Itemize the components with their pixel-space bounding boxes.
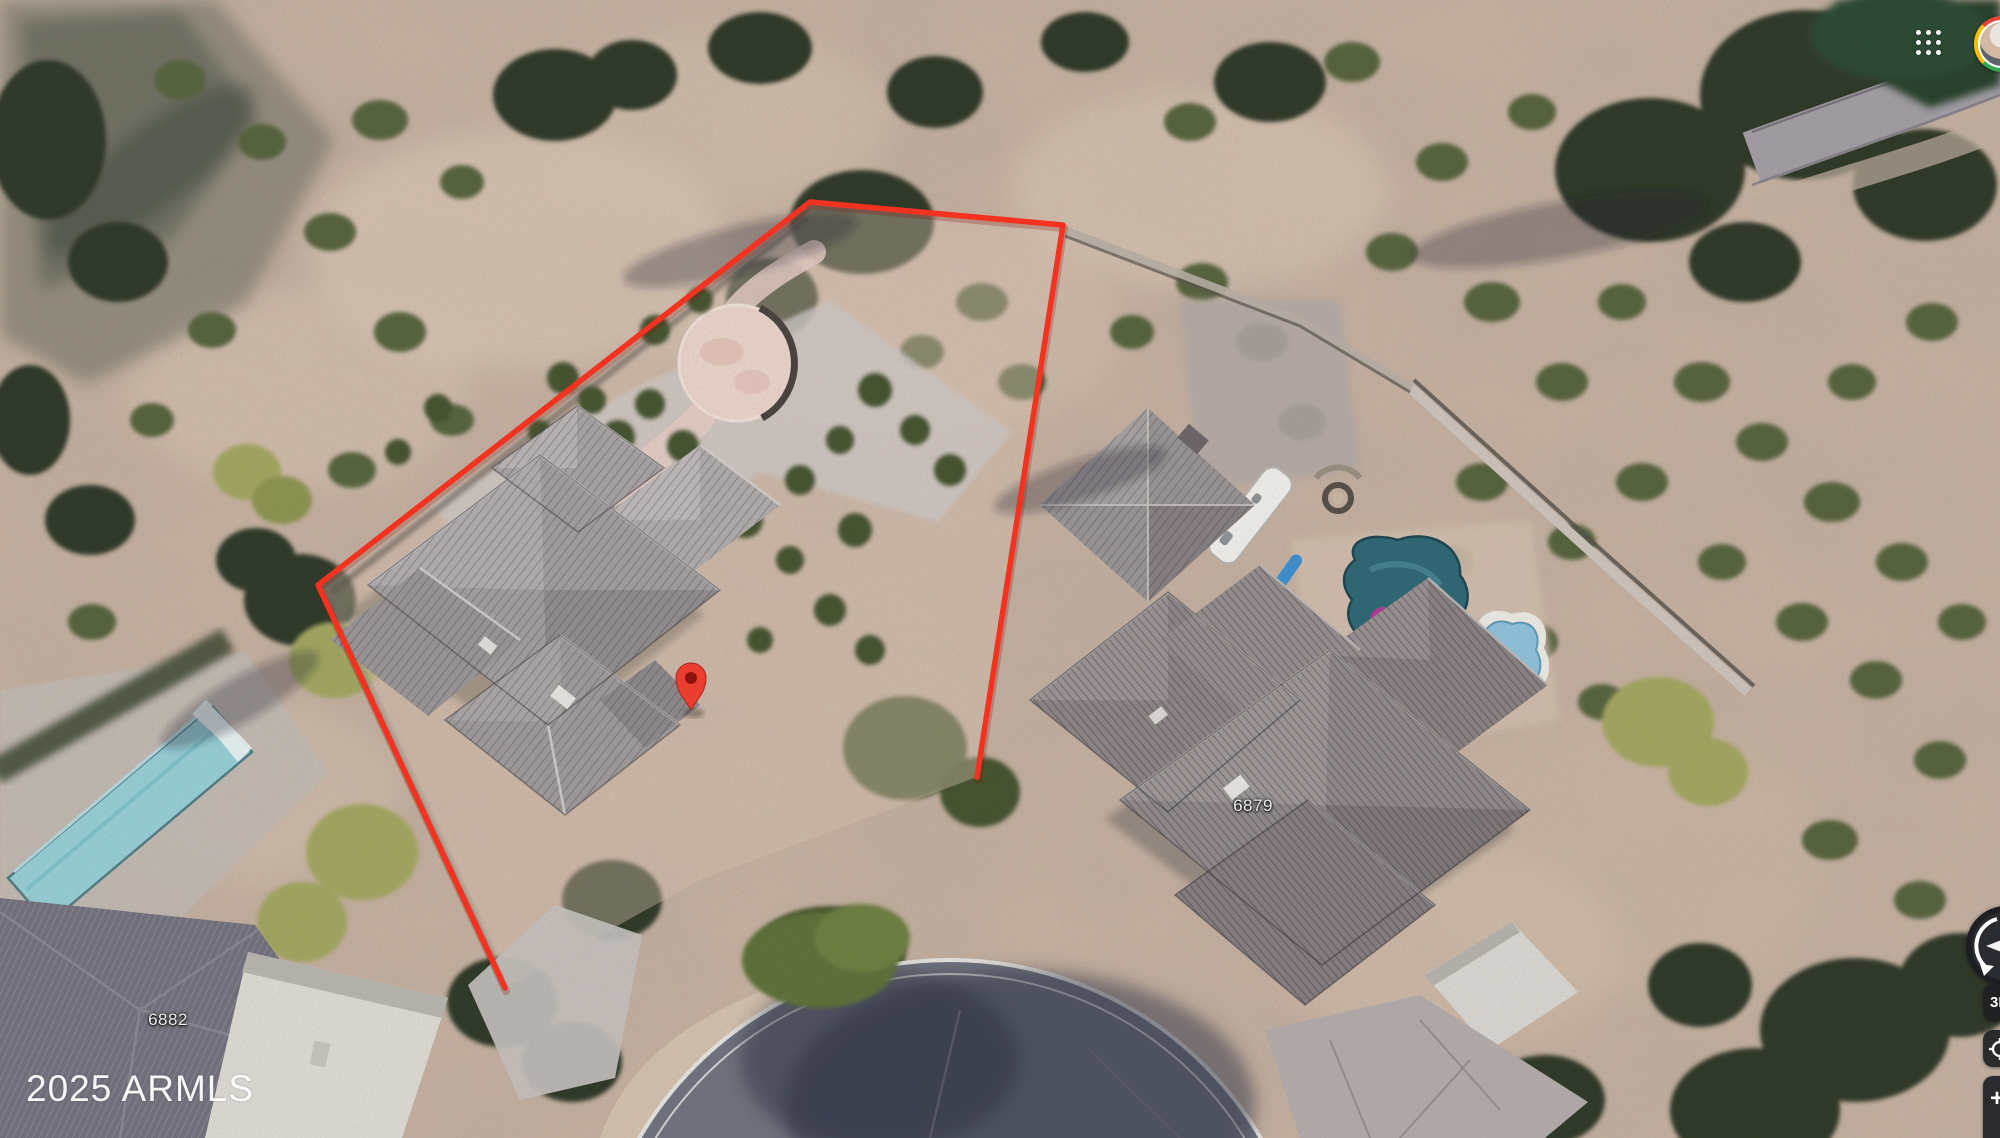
armls-watermark: 2025 ARMLS xyxy=(26,1068,254,1110)
zoom-in-button[interactable]: + xyxy=(1983,1076,2000,1122)
compass-control[interactable] xyxy=(1966,906,2000,986)
my-location-icon xyxy=(1988,1037,2000,1061)
avatar-photo xyxy=(1978,20,2000,68)
3d-toggle-button[interactable]: 3D xyxy=(1983,984,2000,1021)
compass-icon xyxy=(1966,906,2000,986)
aerial-imagery xyxy=(0,0,2000,1138)
my-location-button[interactable] xyxy=(1983,1030,2000,1067)
zoom-control[interactable]: + − xyxy=(1983,1076,2000,1138)
parcel-label-6879: 6879 xyxy=(1233,796,1273,816)
3d-button-label: 3D xyxy=(1983,984,2000,1021)
parcel-label-6882: 6882 xyxy=(148,1010,188,1030)
satellite-map-view[interactable]: 6882 6879 2025 ARMLS 3D + − xyxy=(0,0,2000,1138)
apps-grid-icon[interactable] xyxy=(1916,30,1942,56)
